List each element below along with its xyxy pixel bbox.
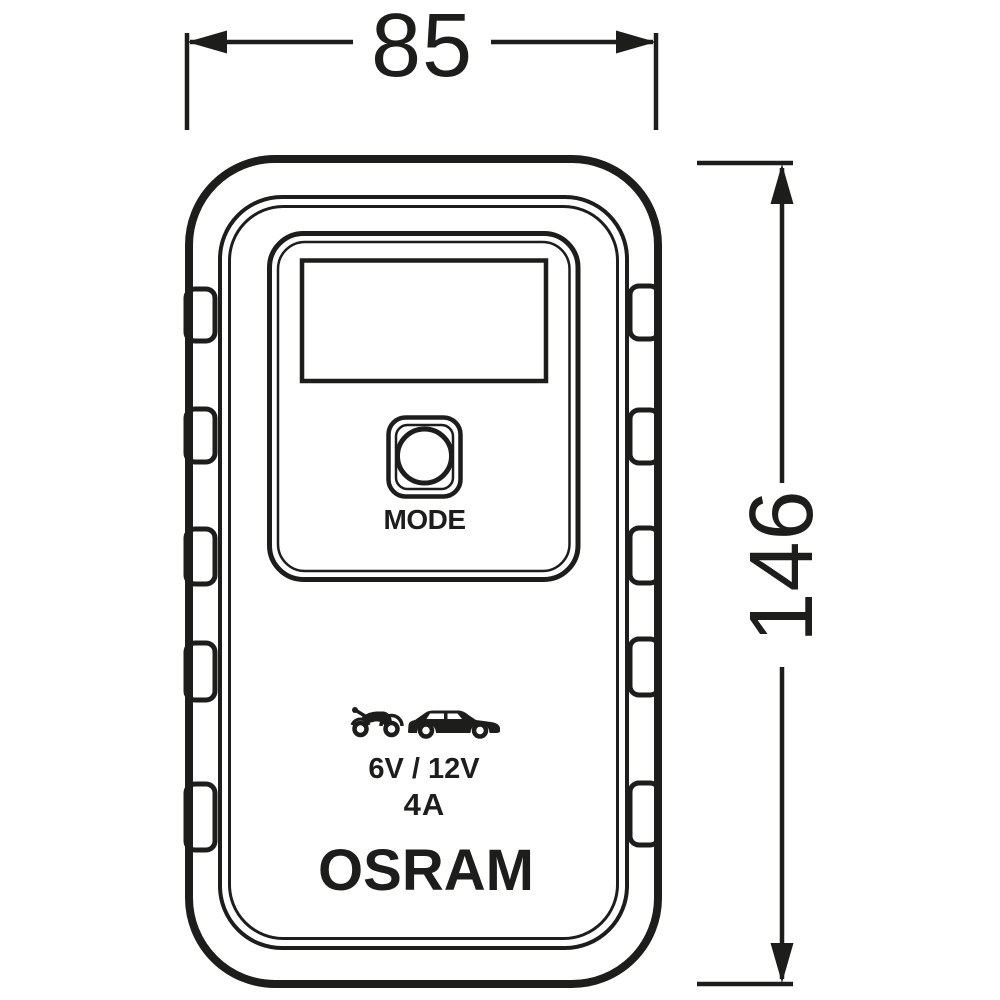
mode-button-circle bbox=[398, 429, 452, 483]
car-icon bbox=[408, 711, 500, 737]
charger-dimension-diagram: 85 146 bbox=[0, 0, 1000, 1000]
current-label: 4A bbox=[404, 787, 446, 822]
mode-button bbox=[389, 418, 461, 497]
technical-drawing: 85 146 bbox=[0, 0, 1000, 1000]
width-arrow-right-icon bbox=[616, 31, 656, 54]
width-dimension: 85 bbox=[187, 0, 656, 130]
ratings: 6V / 12V 4A bbox=[368, 753, 480, 822]
width-arrow-left-icon bbox=[187, 31, 227, 54]
width-value: 85 bbox=[371, 0, 473, 96]
motorcycle-icon bbox=[352, 707, 402, 735]
device-inner-outline-2 bbox=[230, 207, 618, 939]
height-arrow-down-icon bbox=[771, 943, 794, 983]
vehicle-icons bbox=[352, 707, 500, 737]
voltage-label: 6V / 12V bbox=[368, 753, 480, 785]
height-dimension: 146 bbox=[697, 163, 832, 984]
height-value: 146 bbox=[732, 489, 832, 642]
height-arrow-up-icon bbox=[771, 164, 794, 204]
mode-button-label: MODE bbox=[384, 504, 466, 535]
brand-wordmark: OSRAM bbox=[318, 838, 534, 903]
display-screen bbox=[302, 261, 546, 382]
control-panel: MODE bbox=[270, 234, 579, 580]
